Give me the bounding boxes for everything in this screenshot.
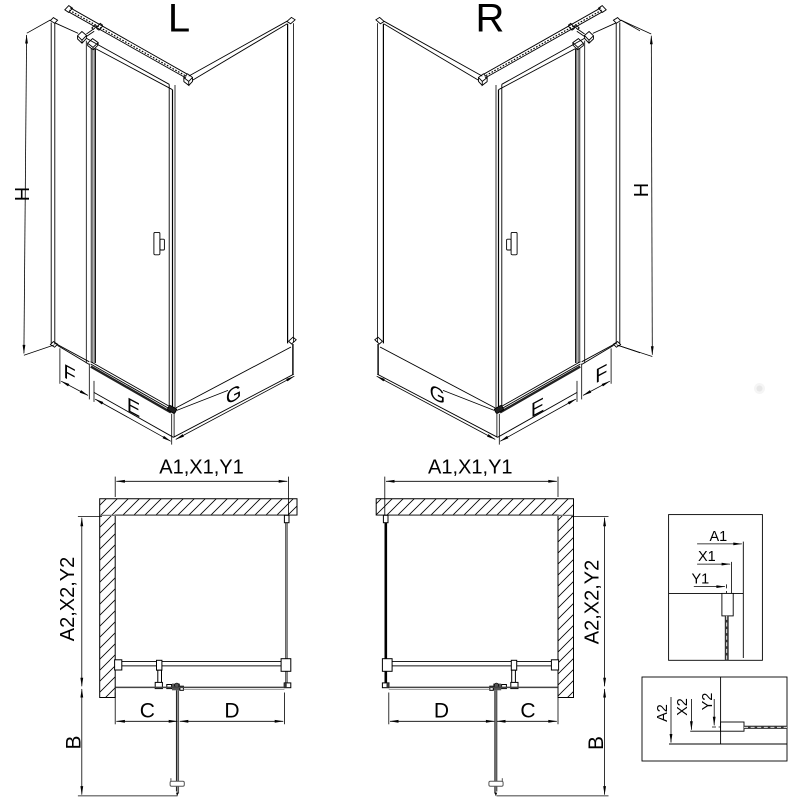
- svg-text:A1,X1,Y1: A1,X1,Y1: [159, 456, 244, 478]
- svg-text:F: F: [595, 359, 607, 388]
- svg-text:A2: A2: [655, 704, 671, 722]
- svg-text:Y1: Y1: [692, 572, 710, 588]
- svg-text:Y2: Y2: [700, 693, 716, 711]
- svg-text:D: D: [224, 700, 239, 723]
- svg-text:X2: X2: [675, 698, 691, 716]
- svg-text:C: C: [140, 700, 155, 723]
- svg-text:B: B: [585, 736, 608, 750]
- svg-text:D: D: [434, 700, 449, 723]
- svg-text:B: B: [62, 735, 85, 749]
- svg-text:A2,X2,Y2: A2,X2,Y2: [57, 557, 79, 642]
- svg-text:A2,X2,Y2: A2,X2,Y2: [582, 560, 604, 645]
- svg-text:F: F: [63, 359, 75, 388]
- svg-text:H: H: [631, 183, 653, 197]
- svg-text:C: C: [520, 700, 535, 723]
- svg-text:A1,X1,Y1: A1,X1,Y1: [428, 456, 513, 478]
- svg-text:X1: X1: [698, 549, 716, 565]
- svg-text:A1: A1: [710, 529, 728, 545]
- svg-text:H: H: [12, 187, 34, 201]
- svg-text:R: R: [476, 0, 505, 41]
- svg-text:L: L: [168, 0, 190, 41]
